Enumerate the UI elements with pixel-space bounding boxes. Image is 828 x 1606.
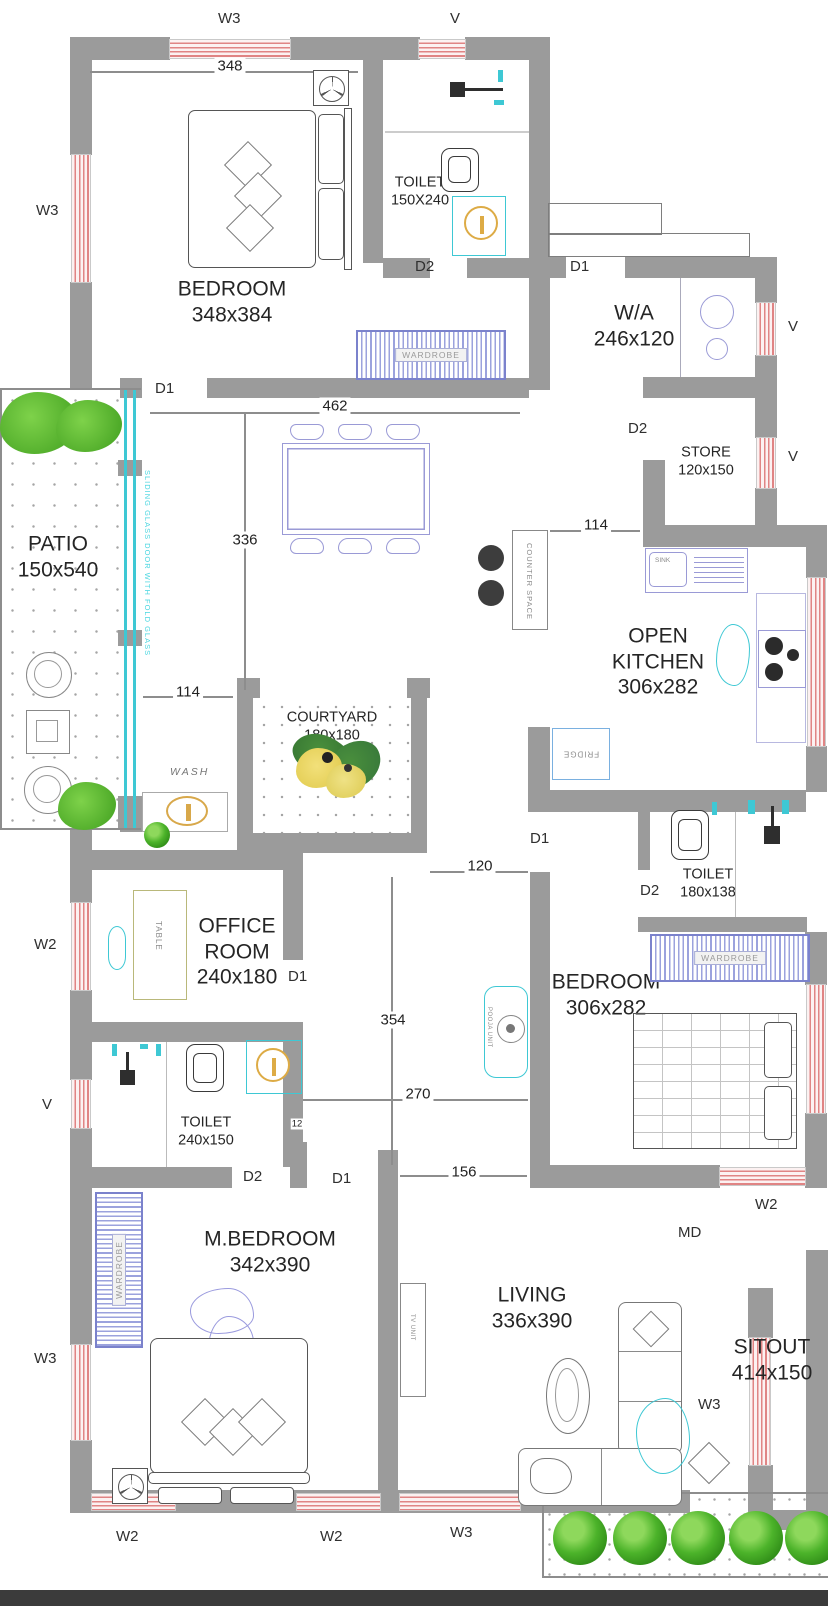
wall [638, 812, 650, 870]
sliding-door-label: SLIDING GLASS DOOR WITH FOLD GLASS [143, 470, 152, 820]
room-name: TOILET [178, 1114, 234, 1132]
tag-w2-bottom1: W2 [116, 1528, 139, 1545]
tap-icon [156, 1044, 161, 1056]
dim-wall-thickness: 12 [291, 1119, 304, 1130]
coffee-table [546, 1358, 590, 1434]
wall [92, 1167, 232, 1188]
room-name: COURTYARD [287, 709, 378, 727]
window-v-wa [757, 303, 775, 355]
bush [671, 1511, 725, 1565]
courtyard-plant-center [322, 752, 333, 763]
sunshade-outline [548, 203, 662, 235]
tag-v-store: V [788, 448, 798, 465]
patio-floor [2, 390, 120, 828]
window-v-store [757, 438, 775, 488]
room-dims: 336x390 [492, 1308, 573, 1334]
dim-bedroom-width: 348 [214, 58, 245, 75]
tag-w3-mbedroom: W3 [34, 1350, 57, 1367]
bottom-bar [0, 1590, 828, 1606]
wall [467, 258, 529, 278]
floor-plan: SLIDING GLASS DOOR WITH FOLD GLASS 348 4… [0, 0, 828, 1606]
dining-chair [338, 424, 372, 440]
tag-w3-sitout: W3 [698, 1396, 721, 1413]
wardrobe-label: WARDROBE [395, 348, 467, 362]
wash-label: WASH [170, 766, 209, 778]
room-dims: 348x384 [178, 302, 287, 328]
tag-w2-bottom2: W2 [320, 1528, 343, 1545]
room-name: OPEN KITCHEN [588, 624, 728, 675]
wall [643, 525, 827, 547]
shower-arm [771, 806, 774, 826]
wall [550, 1165, 720, 1188]
dim-hall-depth: 354 [377, 1012, 408, 1029]
fridge-label: FRIDGE [563, 750, 599, 759]
dining-chair [386, 424, 420, 440]
wall [207, 378, 529, 398]
washbasin [671, 810, 709, 860]
office-chair [108, 926, 126, 970]
washbasin [186, 1044, 224, 1092]
window-w3-mbedroom [72, 1345, 90, 1440]
bed-headboard [344, 108, 352, 270]
table-label: TABLE [154, 921, 163, 951]
sliding-door-line [133, 390, 136, 828]
shower-head-icon [764, 826, 780, 844]
door-track-block [118, 630, 142, 646]
wardrobe: WARDROBE [650, 934, 810, 982]
room-name: BEDROOM [552, 969, 661, 995]
bar-stool [478, 580, 504, 606]
wall [805, 1165, 827, 1188]
wash-basin [166, 796, 208, 826]
wall [237, 698, 253, 838]
counter-space-label: COUNTER SPACE [525, 543, 534, 620]
wall [363, 60, 383, 263]
room-name: M.BEDROOM [204, 1226, 336, 1252]
pillow [318, 188, 344, 260]
tag-d1-wa: D1 [570, 258, 589, 275]
tap-icon [748, 800, 755, 814]
washing-machine [700, 295, 734, 329]
dim-hall-width: 120 [464, 858, 495, 875]
dining-chair [386, 538, 420, 554]
wall [237, 678, 260, 698]
bush [613, 1511, 667, 1565]
shower-head-icon [120, 1070, 135, 1085]
room-label-bedroom1: BEDROOM 348x384 [178, 276, 287, 327]
garden-border [542, 1576, 828, 1578]
room-dims: 306x282 [588, 675, 728, 701]
tap-icon [494, 100, 504, 105]
room-dims: 180x138 [680, 884, 736, 902]
dim-line [244, 412, 246, 690]
window-w2-bedroom2 [720, 1168, 805, 1185]
bar-stool [478, 545, 504, 571]
dining-table [282, 443, 430, 535]
pillow [318, 114, 344, 184]
pooja-unit: POOJA UNIT [484, 986, 528, 1078]
bed [150, 1338, 308, 1474]
room-dims: 240x180 [182, 965, 292, 991]
pooja-label: POOJA UNIT [486, 1007, 492, 1048]
wall [70, 1128, 92, 1345]
dining-chair [338, 538, 372, 554]
toilet3-divider [735, 812, 736, 917]
wardrobe: WARDROBE [95, 1192, 143, 1348]
geyser-icon [464, 206, 498, 240]
fridge: FRIDGE [552, 728, 610, 780]
tag-w3-left: W3 [36, 202, 59, 219]
room-name: TOILET [680, 866, 736, 884]
room-label-store: STORE 120x150 [678, 444, 734, 479]
tag-d2-toilet1: D2 [415, 258, 434, 275]
toilet2-divider [166, 1042, 167, 1167]
sliding-door-line [124, 390, 127, 828]
sink-label: SINK [655, 557, 670, 564]
plant [144, 822, 170, 848]
patio-border [0, 388, 2, 830]
room-dims: 150x540 [18, 557, 99, 583]
room-dims: 150X240 [391, 192, 449, 210]
toilet-wc [441, 148, 479, 192]
wall [755, 257, 777, 303]
shower-arm [126, 1052, 129, 1070]
wall [748, 1288, 773, 1338]
room-dims: 120x150 [678, 462, 734, 480]
tag-w3-bottom: W3 [450, 1524, 473, 1541]
room-name: OFFICE ROOM [182, 914, 292, 965]
wa-divider [680, 278, 681, 377]
wall [545, 257, 566, 278]
window-w2-office [72, 903, 90, 990]
door-track-block [118, 796, 142, 830]
patio-border [0, 388, 141, 390]
door-track-block [118, 460, 142, 476]
room-name: LIVING [492, 1282, 573, 1308]
dim-kitchen-passage: 114 [581, 517, 611, 534]
tag-w2-bedroom2: W2 [755, 1196, 778, 1213]
window-v-toilet2 [72, 1080, 90, 1128]
room-label-toilet2: TOILET 240x150 [178, 1114, 234, 1149]
window-w3-left [72, 155, 90, 282]
dim-entry-width: 156 [448, 1164, 479, 1181]
wall [92, 1022, 303, 1042]
ceiling-fan-icon [112, 1468, 148, 1504]
wall [407, 678, 430, 698]
window-kitchen-right [808, 578, 825, 746]
shower-partition [385, 131, 529, 133]
wall [378, 1150, 398, 1490]
courtyard-plant-center [344, 764, 352, 772]
room-dims: 246x120 [594, 326, 675, 352]
bush [729, 1511, 783, 1565]
wall [290, 1142, 307, 1188]
wall [237, 833, 427, 853]
tag-d2-toilet3: D2 [640, 882, 659, 899]
tag-d1-hall: D1 [530, 830, 549, 847]
patio-chair [26, 652, 72, 698]
wall [638, 917, 807, 932]
tag-w2-office: W2 [34, 936, 57, 953]
tap-icon [112, 1044, 117, 1056]
room-label-wa: W/A 246x120 [594, 300, 675, 351]
sunshade-outline [548, 233, 750, 257]
tag-v-wa: V [788, 318, 798, 335]
tag-d1-mbedroom: D1 [332, 1170, 351, 1187]
room-name: STORE [678, 444, 734, 462]
wardrobe-label: WARDROBE [694, 951, 766, 965]
dim-dining-depth: 336 [229, 532, 260, 549]
wall [70, 990, 92, 1080]
window-bedroom2-right [807, 985, 825, 1113]
wall [530, 872, 550, 1188]
geyser-icon [256, 1048, 290, 1082]
tag-w3-top: W3 [218, 10, 241, 27]
room-name: SITOUT [732, 1334, 813, 1360]
room-name: PATIO [18, 531, 99, 557]
dining-chair [290, 538, 324, 554]
tag-v-toilet2: V [42, 1096, 52, 1113]
wall [411, 698, 427, 838]
dining-chair [290, 424, 324, 440]
person-figure [636, 1398, 690, 1474]
tag-md: MD [678, 1224, 701, 1241]
wall [290, 37, 420, 60]
wall [643, 377, 777, 398]
pillow [230, 1487, 294, 1504]
tag-d1-bedroom1: D1 [155, 380, 174, 397]
pillow [764, 1022, 792, 1078]
dim-hall-lower-width: 270 [402, 1086, 433, 1103]
tap-icon [782, 800, 789, 814]
patio-border [0, 828, 141, 830]
wall [70, 60, 92, 155]
wall [748, 1465, 773, 1513]
room-label-kitchen: OPEN KITCHEN 306x282 [588, 624, 728, 701]
dim-dining-width: 462 [319, 398, 350, 415]
wall [806, 547, 827, 578]
wall [806, 746, 827, 792]
room-label-sitout: SITOUT 414x150 [732, 1334, 813, 1385]
room-dims: 240x150 [178, 1132, 234, 1150]
counter-space: COUNTER SPACE [512, 530, 548, 630]
dim-patio-passage: 114 [173, 684, 203, 701]
room-label-living: LIVING 336x390 [492, 1282, 573, 1333]
window-w3-bottom [400, 1494, 520, 1510]
tap-icon [498, 70, 503, 82]
washing-machine [706, 338, 728, 360]
pillow [764, 1086, 792, 1140]
room-label-mbedroom: M.BEDROOM 342x390 [204, 1226, 336, 1277]
bed-footboard [148, 1472, 310, 1484]
room-name: BEDROOM [178, 276, 287, 302]
wall [70, 282, 92, 390]
tag-v-top: V [450, 10, 460, 27]
tag-d2-store: D2 [628, 420, 647, 437]
tv-unit: TV UNIT [400, 1283, 426, 1397]
room-label-office: OFFICE ROOM 240x180 [182, 914, 292, 991]
wardrobe: WARDROBE [356, 330, 506, 380]
window-w3-top [170, 40, 290, 58]
window-w2-bottom2 [297, 1494, 380, 1510]
pillow [158, 1487, 222, 1504]
room-label-patio: PATIO 150x540 [18, 531, 99, 582]
shower-head-icon [450, 82, 465, 97]
wall [70, 37, 170, 60]
ceiling-fan-icon [313, 70, 349, 106]
office-table: TABLE [133, 890, 187, 1000]
wall [70, 850, 303, 870]
wall [529, 37, 550, 390]
room-dims: 414x150 [732, 1360, 813, 1386]
room-name: W/A [594, 300, 675, 326]
bush [553, 1511, 607, 1565]
room-dims: 342x390 [204, 1252, 336, 1278]
wardrobe-label: WARDROBE [112, 1234, 126, 1306]
pillow [530, 1458, 572, 1494]
tap-icon [140, 1044, 148, 1049]
room-label-toilet3: TOILET 180x138 [680, 866, 736, 901]
cushion [688, 1442, 730, 1484]
person-figure [716, 624, 750, 686]
patio-table [26, 710, 70, 754]
kitchen-sink-counter: SINK [645, 548, 748, 593]
window-v-top [419, 40, 465, 58]
wall [528, 790, 806, 812]
tap-icon [712, 802, 717, 815]
tag-d2-toilet2: D2 [243, 1168, 262, 1185]
tv-unit-label: TV UNIT [409, 1314, 415, 1341]
stove [758, 630, 806, 688]
shower-arm [465, 88, 503, 91]
